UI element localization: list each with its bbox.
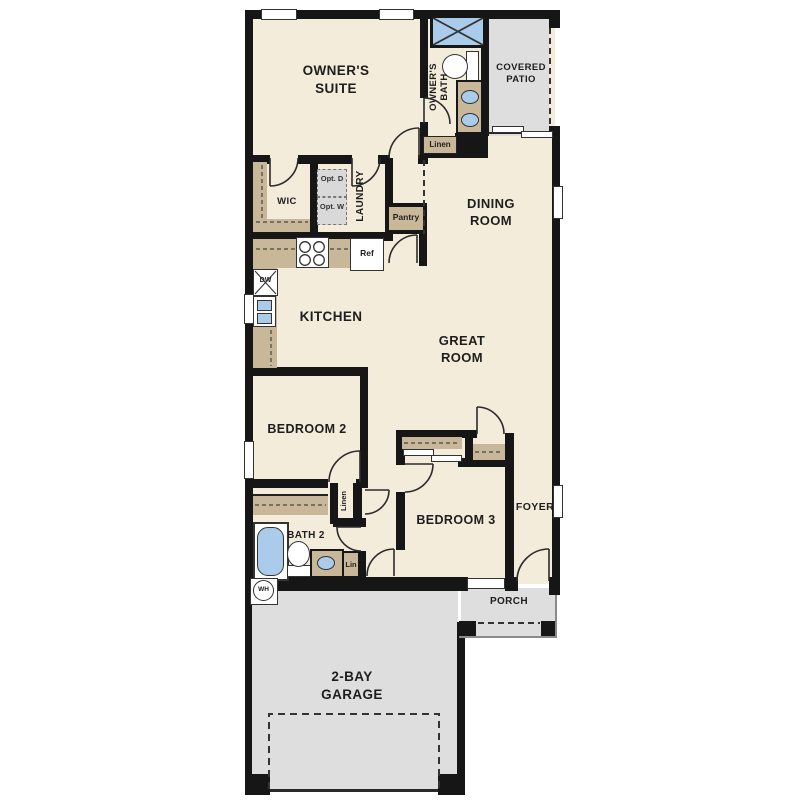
garage-wall-right [457, 622, 465, 795]
kitchen-sink-basin-2 [257, 313, 272, 324]
tub [257, 527, 284, 576]
label-pantry: Pantry [387, 212, 425, 223]
window-bedroom2-left [244, 441, 254, 479]
window-bedroom3-bottom [467, 578, 505, 589]
label-wic: WIC [272, 196, 302, 208]
floor-plan: Opt. D Opt. W OWNER'S SUITE OWNER'S BATH… [0, 0, 810, 810]
suite-wall-b [298, 155, 352, 164]
porch-edge-bottom [459, 636, 557, 638]
label-covered-patio: COVERED PATIO [489, 62, 553, 87]
label-owners-suite: OWNER'S SUITE [286, 62, 386, 97]
label-great-room: GREAT ROOM [427, 333, 497, 367]
label-kitchen: KITCHEN [286, 308, 376, 326]
label-garage: 2-BAY GARAGE [317, 668, 387, 703]
garage-post-bl [245, 774, 270, 795]
wall-bottom-c [549, 577, 560, 595]
garage-wall-left [245, 592, 252, 795]
kitchen-sink-basin-1 [257, 300, 272, 311]
owners-sink-1 [461, 90, 479, 104]
coat-closet-shelf [473, 444, 505, 460]
linen-block-wall [455, 133, 488, 158]
patio-sliding-door-panel-1 [492, 126, 524, 133]
label-wh: WH [253, 586, 274, 594]
laundry-wall-right [385, 158, 393, 208]
bath-wall-left-upper [420, 14, 428, 98]
label-dw: DW [253, 276, 278, 285]
toilet-bowl-bath2-icon [287, 541, 310, 567]
patio-post-top [549, 12, 560, 28]
window-suite-top-2 [379, 9, 414, 20]
bedroom2-wall-top [245, 367, 368, 376]
opt-washer-box: Opt. W [317, 197, 347, 225]
label-porch: PORCH [479, 595, 539, 608]
label-bedroom3: BEDROOM 3 [401, 512, 511, 528]
pantry-jamb-wall [419, 234, 427, 266]
window-suite-top-1 [261, 9, 297, 20]
opt-dryer-box: Opt. D [317, 169, 347, 197]
label-owners-bath: OWNER'S BATH [428, 52, 454, 122]
owners-sink-2 [461, 113, 479, 127]
label-foyer: FOYER [512, 501, 558, 515]
bath2-sink [317, 556, 335, 570]
label-linen-hall: Linen [339, 485, 351, 517]
label-dining-room: DINING ROOM [456, 196, 526, 230]
label-bath2: BATH 2 [281, 529, 331, 542]
label-bedroom2: BEDROOM 2 [252, 421, 362, 437]
bedroom2-closet-shelf [253, 494, 328, 515]
garage-door-line [270, 789, 438, 792]
bedroom3-slider-panel-2 [431, 455, 462, 462]
bedroom2-wall-bottom-a [245, 479, 328, 488]
bedroom3-slider-panel-1 [403, 449, 434, 456]
porch-post-left [459, 621, 476, 637]
patio-sliding-door-panel-2 [521, 131, 553, 138]
window-kitchen-left [244, 294, 254, 324]
wic-shelf-bottom [253, 219, 310, 232]
bath2-wall-top [333, 518, 366, 527]
porch-edge-right [555, 595, 557, 638]
window-dining-right [553, 186, 563, 219]
label-laundry: LAUNDRY [354, 151, 370, 241]
label-lin: Lin [342, 560, 360, 570]
bedroom3-closet-shelf [402, 437, 462, 449]
label-ref: Ref [350, 248, 384, 259]
label-linen-bath: Linen [423, 140, 457, 150]
shower [430, 15, 486, 48]
stove [296, 237, 329, 268]
